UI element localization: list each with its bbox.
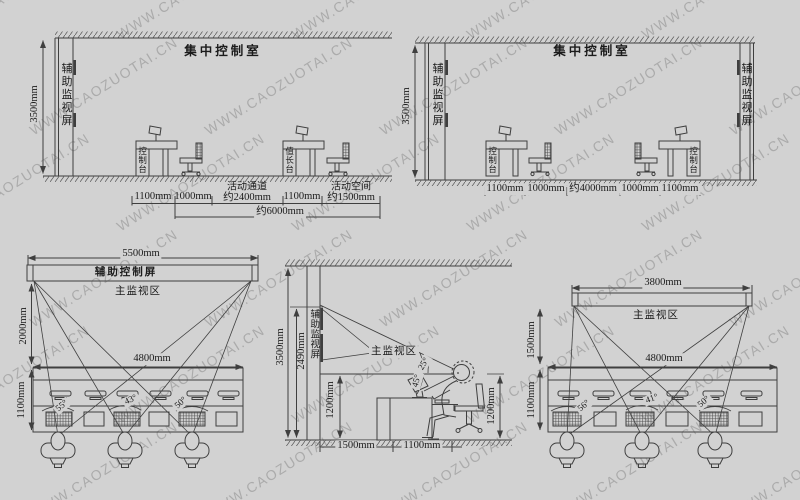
tl-chief-desk-label: 值长台 bbox=[284, 147, 293, 174]
tl-chair-1 bbox=[180, 143, 202, 176]
bl-console-dim: 1100mm bbox=[16, 382, 28, 419]
bl-operators bbox=[41, 432, 209, 468]
tr-console-label-right: 控制台 bbox=[688, 147, 697, 174]
bm-eye-height-dim: 1200mm bbox=[486, 387, 498, 424]
tr-chair-left bbox=[529, 143, 551, 176]
tl-room-title: 集中控制室 bbox=[184, 45, 262, 59]
bm-area-pointer-lines bbox=[322, 309, 372, 360]
bm-screen-dim: 2490mm bbox=[296, 332, 308, 369]
tl-height-dim: 3500mm bbox=[29, 85, 41, 122]
scanned-diagram-page: WWW.CAOZUOTAI.CNWWW.CAOZUOTAI.CNWWW.CAOZ… bbox=[0, 0, 800, 500]
br-operators bbox=[550, 432, 732, 468]
tl-chair-2 bbox=[327, 143, 349, 176]
tl-monitor-icon-2 bbox=[296, 126, 308, 135]
br-left-dim: 1500mm bbox=[526, 321, 538, 358]
bl-mid-dim: 4800mm bbox=[131, 353, 172, 365]
tr-dim-1100b: 1100mm bbox=[660, 183, 701, 195]
tl-space-label: 活动空间 bbox=[331, 182, 371, 193]
bl-left-dim: 2000mm bbox=[18, 307, 30, 344]
br-top-dim: 3800mm bbox=[642, 277, 683, 289]
tr-dim-1000a: 1000mm bbox=[525, 183, 566, 195]
br-area-label: 主监视区 bbox=[633, 310, 679, 322]
tr-screen-label-left: 辅助监视屏 bbox=[431, 63, 443, 128]
tr-console-label-left: 控制台 bbox=[487, 147, 496, 174]
tr-monitor-icon-right bbox=[675, 126, 687, 135]
tr-room-title: 集中控制室 bbox=[553, 45, 631, 59]
tl-monitor-icon bbox=[149, 126, 161, 135]
bm-floor-hatch bbox=[285, 440, 512, 446]
bm-wall-dim: 3500mm bbox=[275, 328, 287, 365]
tr-dim-1000b: 1000mm bbox=[619, 183, 660, 195]
bm-ceiling-hatch bbox=[285, 260, 512, 267]
br-console-dim: 1100mm bbox=[526, 382, 538, 419]
tl-total-dim: 约6000mm bbox=[254, 206, 306, 218]
tr-dim-4000: 约4000mm bbox=[567, 183, 619, 195]
tl-screen-label: 辅助监视屏 bbox=[60, 63, 72, 128]
tr-room-structure bbox=[415, 37, 757, 187]
bl-screen-bar-label: 辅助控制屏 bbox=[95, 267, 158, 279]
bm-floor-dim-1100: 1100mm bbox=[402, 440, 443, 452]
bm-console-height-dim: 1200mm bbox=[325, 381, 337, 418]
tl-passage-label: 活动通道 bbox=[227, 182, 267, 193]
tl-console-label: 控制台 bbox=[137, 147, 146, 174]
tr-dim-1100a: 1100mm bbox=[485, 183, 526, 195]
bl-area-label: 主监视区 bbox=[115, 286, 161, 298]
br-mid-dim: 4800mm bbox=[643, 353, 684, 365]
br-screen-bar bbox=[572, 293, 752, 306]
tr-ceiling-hatch bbox=[415, 37, 755, 44]
tl-dim-1100: 1100mm bbox=[135, 191, 172, 203]
bm-area-label: 主监视区 bbox=[369, 346, 419, 358]
bm-chair bbox=[455, 384, 485, 433]
tl-passage-dim: 约2400mm bbox=[223, 192, 271, 204]
bm-screen-label: 辅助监视屏 bbox=[308, 309, 318, 359]
bl-top-dim: 5500mm bbox=[120, 248, 161, 260]
tr-monitor-icon-left bbox=[499, 126, 511, 135]
bm-floor-dim-1500: 1500mm bbox=[335, 440, 376, 452]
tr-screen-label-right: 辅助监视屏 bbox=[740, 63, 752, 128]
tl-ceiling-hatch bbox=[55, 32, 392, 39]
tl-space-dim: 约1500mm bbox=[327, 192, 375, 204]
tr-height-dim: 3500mm bbox=[401, 87, 413, 124]
tl-dim-1100b: 1100mm bbox=[284, 191, 321, 203]
tl-dim-1000: 1000mm bbox=[174, 191, 211, 203]
tr-chair-right bbox=[635, 143, 657, 176]
